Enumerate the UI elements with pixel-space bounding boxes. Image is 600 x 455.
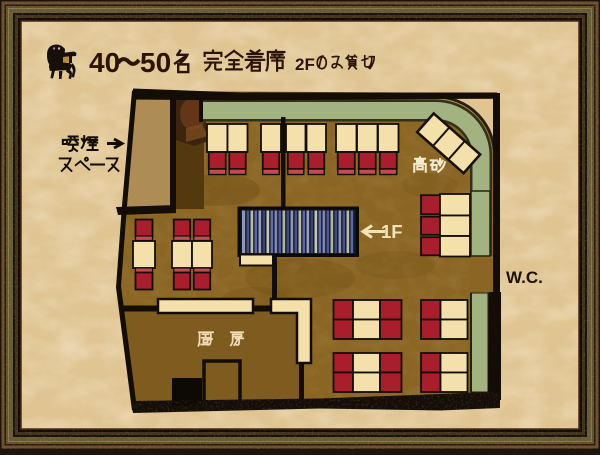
svg-text:40: 40 bbox=[89, 47, 120, 78]
svg-text:W.C.: W.C. bbox=[506, 268, 543, 287]
svg-text:50: 50 bbox=[140, 47, 171, 78]
svg-text:2F: 2F bbox=[295, 55, 315, 74]
svg-text:1F: 1F bbox=[381, 221, 403, 242]
